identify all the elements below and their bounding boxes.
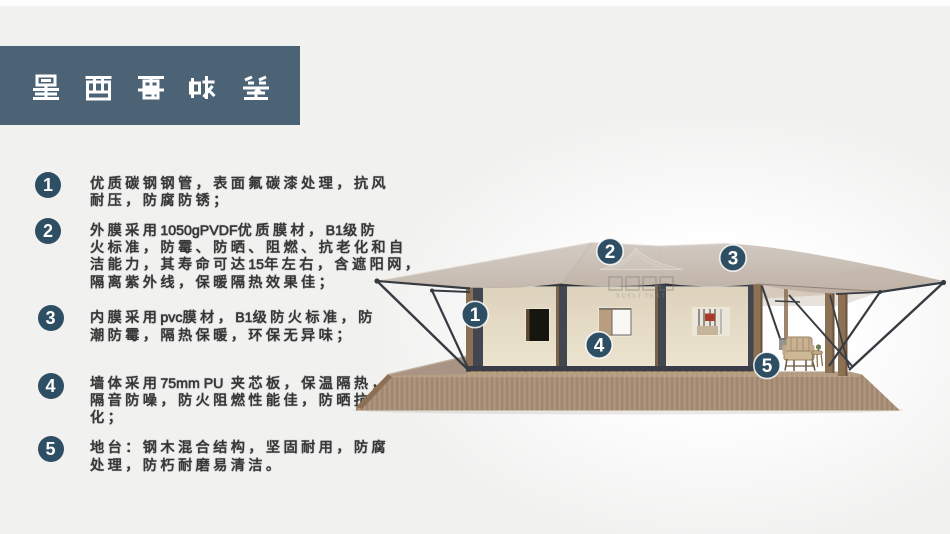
svg-text:1: 1 xyxy=(470,305,481,326)
svg-text:XUELI TENT: XUELI TENT xyxy=(616,293,667,300)
svg-text:4: 4 xyxy=(594,336,605,357)
svg-text:2: 2 xyxy=(605,242,616,263)
svg-text:3: 3 xyxy=(728,249,739,270)
svg-text:5: 5 xyxy=(762,356,773,377)
